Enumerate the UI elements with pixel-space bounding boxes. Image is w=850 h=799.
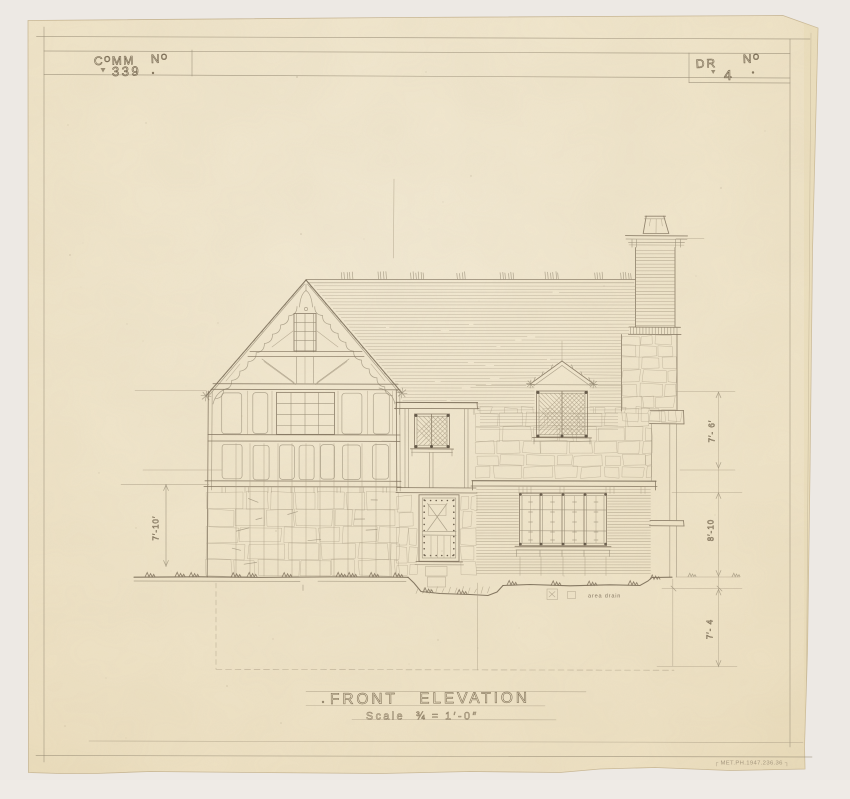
svg-text:DR: DR [695,56,717,71]
svg-text:┌ MET.PH.1947.236.36 ┐: ┌ MET.PH.1947.236.36 ┐ [714,761,789,767]
svg-text:4: 4 [724,67,732,83]
svg-text:area drain: area drain [588,594,621,600]
svg-text:7′- 6′: 7′- 6′ [708,420,717,443]
svg-text:Scale ¾ = 1′-0″: Scale ¾ = 1′-0″ [366,711,479,723]
svg-text:339: 339 [112,63,141,79]
svg-text:7′- 4: 7′- 4 [706,619,715,639]
svg-text:FRONT ELEVATION: FRONT ELEVATION [330,690,530,708]
svg-text:7′-10′: 7′-10′ [152,515,161,540]
svg-text:8′-10: 8′-10 [707,519,716,542]
